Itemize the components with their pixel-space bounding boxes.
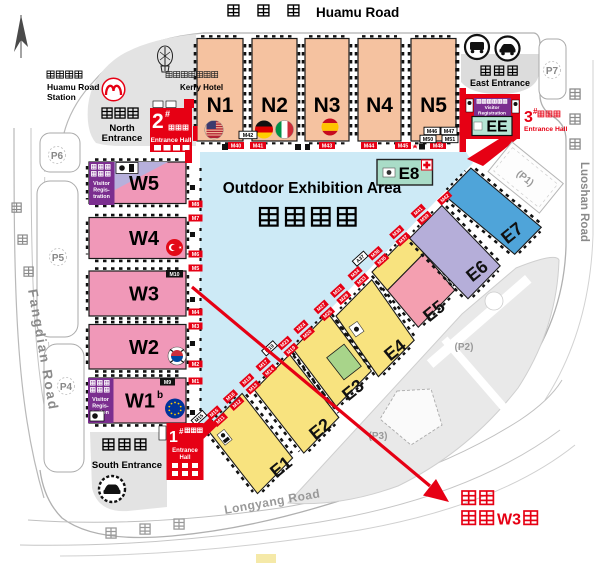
svg-text:EE: EE	[486, 119, 508, 136]
svg-text:M5: M5	[192, 266, 200, 272]
svg-text:W2: W2	[129, 337, 159, 359]
svg-text:Kerry Hotel: Kerry Hotel	[180, 83, 223, 92]
svg-text:tration: tration	[93, 194, 110, 200]
svg-text:Visitor: Visitor	[93, 181, 111, 187]
svg-text:W3: W3	[497, 512, 521, 529]
svg-text:Entrance Hall: Entrance Hall	[524, 126, 568, 133]
svg-text:Huamu Road: Huamu Road	[47, 82, 99, 92]
svg-text:W3: W3	[129, 284, 159, 306]
svg-text:N1: N1	[207, 94, 234, 117]
svg-text:M9: M9	[164, 380, 171, 386]
svg-text:M40: M40	[231, 143, 242, 149]
svg-text:P5: P5	[52, 253, 65, 264]
svg-text:M45: M45	[398, 143, 409, 149]
svg-text:South Entrance: South Entrance	[92, 460, 162, 471]
svg-text:1: 1	[169, 429, 178, 446]
svg-text:East Entrance: East Entrance	[470, 78, 530, 88]
svg-text:#: #	[533, 107, 538, 116]
svg-text:Registration: Registration	[478, 111, 506, 117]
svg-text:P7: P7	[546, 66, 559, 77]
svg-text:M51: M51	[445, 137, 456, 143]
svg-text:M2: M2	[192, 362, 200, 368]
svg-text:M7: M7	[192, 216, 200, 222]
svg-text:Luoshan Road: Luoshan Road	[578, 162, 590, 242]
svg-text:M1: M1	[192, 379, 200, 385]
svg-text:M4: M4	[192, 310, 200, 316]
svg-text:Visitor: Visitor	[92, 397, 110, 403]
svg-text:N5: N5	[420, 94, 447, 117]
svg-text:M10: M10	[169, 272, 179, 278]
svg-text:M8: M8	[192, 202, 200, 208]
svg-text:W1: W1	[125, 391, 155, 413]
svg-text:N2: N2	[261, 94, 288, 117]
svg-text:E8: E8	[399, 164, 420, 183]
svg-text:M48: M48	[433, 143, 444, 149]
svg-text:Huamu Road: Huamu Road	[316, 5, 399, 20]
svg-text:P6: P6	[51, 151, 64, 162]
svg-text:M3: M3	[192, 324, 200, 330]
svg-text:3: 3	[524, 109, 533, 126]
svg-text:Station: Station	[47, 92, 76, 102]
svg-text:b: b	[157, 390, 163, 401]
svg-text:M50: M50	[423, 137, 434, 143]
svg-text:M47: M47	[444, 129, 455, 135]
svg-text:M43: M43	[322, 143, 333, 149]
svg-text:Visitor: Visitor	[485, 105, 500, 111]
svg-text:M46: M46	[427, 129, 438, 135]
svg-text:Regis-: Regis-	[92, 403, 109, 409]
svg-text:N4: N4	[366, 94, 393, 117]
svg-text:Outdoor Exhibition Area: Outdoor Exhibition Area	[223, 180, 402, 197]
svg-text:(P2): (P2)	[455, 342, 474, 353]
svg-text:P4: P4	[60, 382, 73, 393]
svg-text:M44: M44	[364, 143, 375, 149]
svg-text:M6: M6	[192, 252, 200, 258]
svg-text:2: 2	[152, 110, 164, 133]
svg-text:#: #	[179, 427, 184, 436]
svg-text:Hall: Hall	[179, 455, 190, 461]
svg-text:N3: N3	[314, 94, 341, 117]
svg-text:Entrance: Entrance	[172, 448, 198, 454]
svg-text:Entrance: Entrance	[102, 133, 143, 144]
svg-text:M42: M42	[243, 133, 254, 139]
svg-text:W5: W5	[129, 173, 159, 195]
svg-text:W4: W4	[129, 228, 160, 250]
svg-text:#: #	[165, 109, 170, 119]
svg-text:M41: M41	[253, 143, 264, 149]
svg-text:Regis-: Regis-	[93, 187, 110, 193]
svg-text:Entrance Hall: Entrance Hall	[151, 137, 192, 144]
